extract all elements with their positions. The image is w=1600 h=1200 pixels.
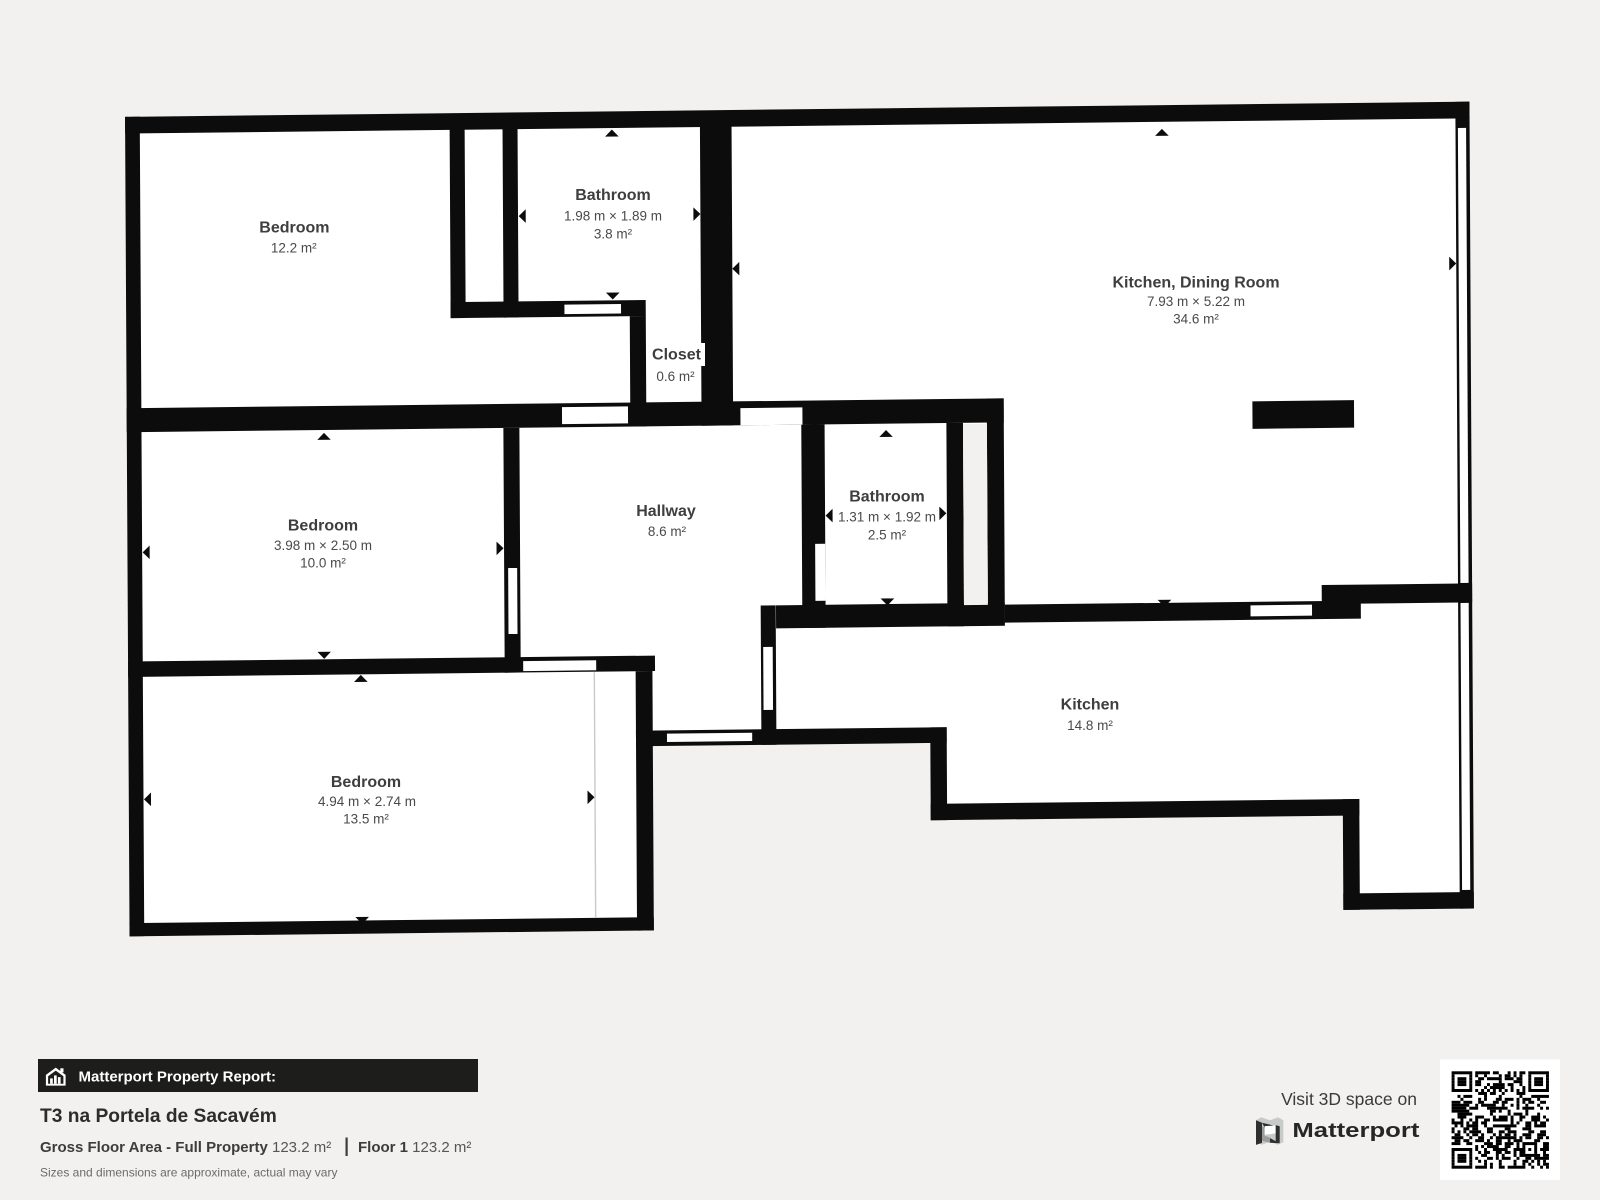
svg-text:4.94 m × 2.74 m: 4.94 m × 2.74 m — [318, 794, 416, 809]
svg-text:7.93 m × 5.22 m: 7.93 m × 5.22 m — [1147, 294, 1245, 309]
svg-text:Kitchen: Kitchen — [1061, 697, 1120, 714]
svg-text:Bathroom: Bathroom — [849, 489, 925, 506]
svg-text:1.98 m × 1.89 m: 1.98 m × 1.89 m — [564, 209, 662, 224]
svg-text:0.6 m²: 0.6 m² — [656, 369, 695, 384]
svg-text:Gross Floor Area - Full Proper: Gross Floor Area - Full Property 123.2 m… — [40, 1139, 331, 1156]
svg-text:14.8 m²: 14.8 m² — [1067, 718, 1113, 733]
svg-text:Matterport: Matterport — [1292, 1119, 1419, 1142]
svg-text:Kitchen, Dining Room: Kitchen, Dining Room — [1112, 274, 1279, 291]
svg-text:Visit 3D space on: Visit 3D space on — [1281, 1089, 1417, 1109]
svg-text:Bathroom: Bathroom — [575, 187, 651, 204]
svg-text:10.0 m²: 10.0 m² — [300, 556, 346, 571]
svg-text:34.6 m²: 34.6 m² — [1173, 312, 1219, 327]
svg-text:Matterport Property Report:: Matterport Property Report: — [79, 1069, 277, 1086]
svg-text:12.2 m²: 12.2 m² — [271, 241, 317, 256]
svg-text:Floor 1 123.2 m²: Floor 1 123.2 m² — [358, 1139, 471, 1156]
svg-text:Hallway: Hallway — [636, 503, 696, 520]
svg-text:Closet: Closet — [652, 347, 702, 364]
svg-text:2.5 m²: 2.5 m² — [868, 528, 907, 543]
svg-text:T3 na Portela de Sacavém: T3 na Portela de Sacavém — [40, 1106, 277, 1127]
svg-text:8.6 m²: 8.6 m² — [648, 524, 687, 539]
svg-text:Sizes and dimensions are appro: Sizes and dimensions are approximate, ac… — [40, 1166, 337, 1180]
svg-text:3.8 m²: 3.8 m² — [594, 227, 633, 242]
svg-text:3.98 m × 2.50 m: 3.98 m × 2.50 m — [274, 538, 372, 553]
svg-text:13.5 m²: 13.5 m² — [343, 812, 389, 827]
svg-text:Bedroom: Bedroom — [259, 220, 329, 237]
svg-text:Bedroom: Bedroom — [331, 774, 401, 791]
svg-text:1.31 m × 1.92 m: 1.31 m × 1.92 m — [838, 510, 936, 525]
svg-text:Bedroom: Bedroom — [288, 518, 358, 535]
